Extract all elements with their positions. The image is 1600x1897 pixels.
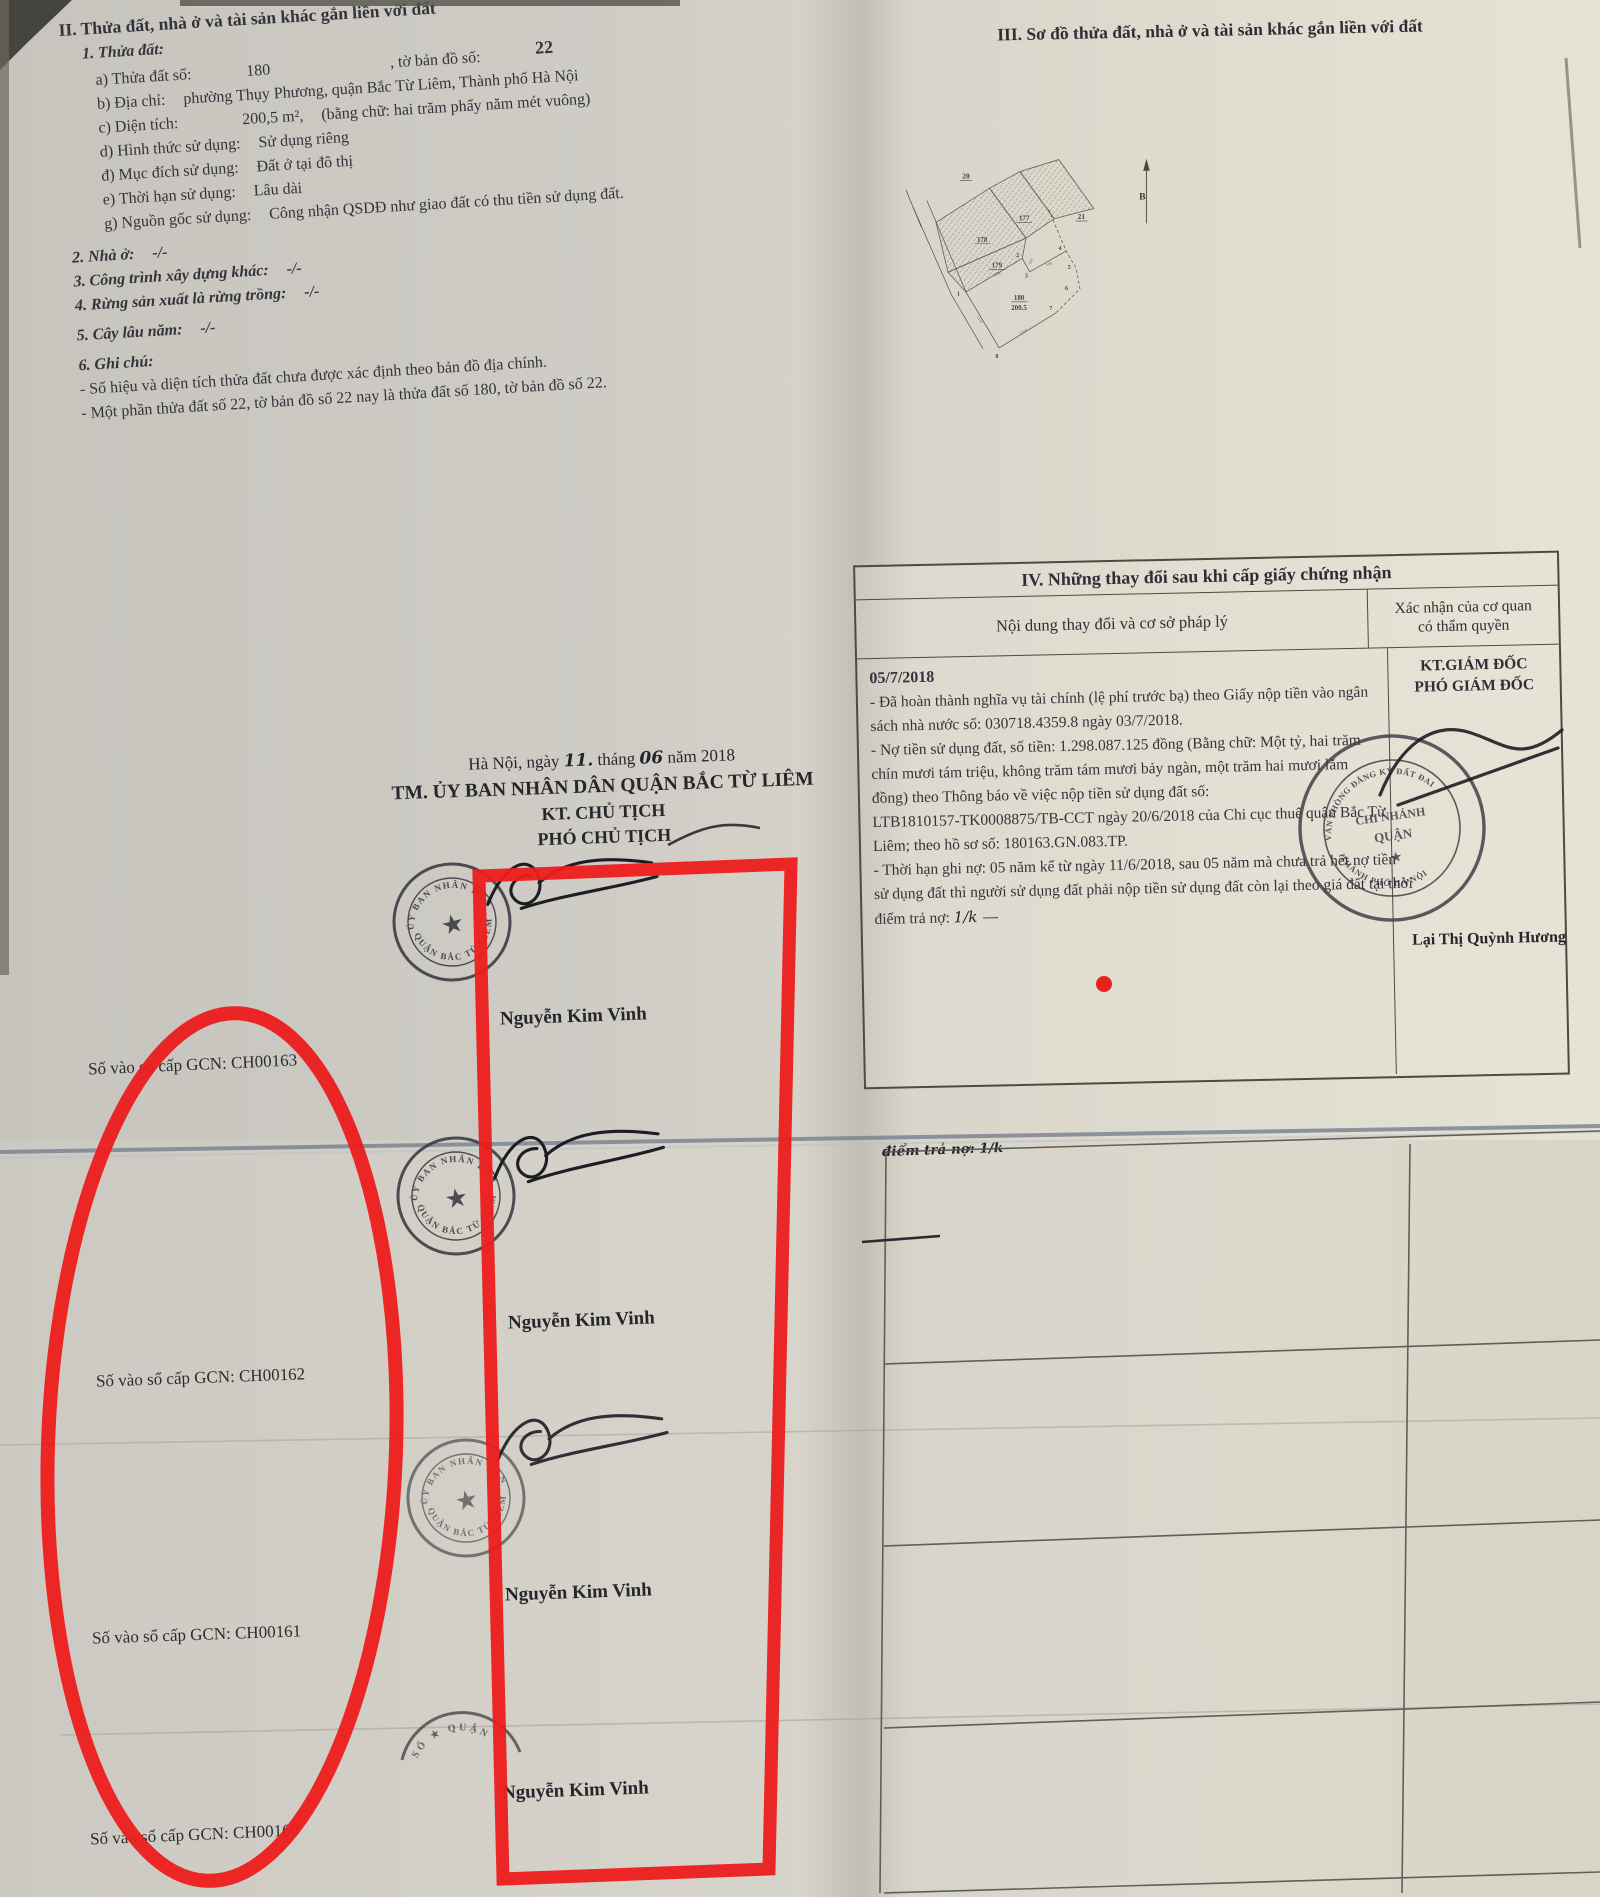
cont-row-line-5 (884, 1872, 1600, 1893)
registry-office-stamp: VĂN PHÒNG ĐĂNG KÝ ĐẤT ĐAI THÀNH PHỐ HÀ N… (1288, 724, 1496, 932)
red-dot-mark (1096, 976, 1112, 992)
page-left-edge-shadow (0, 0, 9, 975)
signature-3 (495, 1409, 669, 1468)
continuation-table (880, 1131, 1600, 1893)
signature-1-tail (668, 825, 760, 845)
red-rectangle-annotation (479, 864, 791, 1879)
page-corner-shadow (0, 0, 72, 70)
signature-2 (491, 1124, 666, 1185)
svg-text:THÀNH PHỐ HÀ NỘI: THÀNH PHỐ HÀ NỘI (1337, 842, 1430, 895)
big-stamp-star: ★ (1389, 850, 1404, 867)
big-stamp-center-2: QUẬN (1373, 825, 1414, 845)
cont-row-line-2 (884, 1340, 1600, 1364)
crease-line-2 (0, 1418, 1600, 1445)
cont-row-line-3 (884, 1520, 1600, 1546)
committee-stamp-3 (397, 1429, 535, 1567)
main-fold-highlight (0, 1132, 1600, 1158)
big-stamp-arc-bottom: THÀNH PHỐ HÀ NỘI (1337, 842, 1430, 895)
cont-row-line-4 (884, 1702, 1600, 1728)
crease-line-3 (60, 1704, 1600, 1735)
signature-1 (485, 853, 659, 912)
overlay-graphics: ỦY BAN NHÂN DÂN QUẬN BẮC TỪ LIÊM ★ (0, 0, 1600, 1897)
page-right-edge-line (1566, 58, 1580, 248)
red-oval-annotation (33, 1007, 411, 1887)
big-stamp-center-1: CHI NHÁNH (1355, 804, 1427, 828)
main-fold-line (0, 1126, 1600, 1152)
cont-column-divider (1402, 1144, 1410, 1893)
cont-left-border (880, 1152, 886, 1893)
page-top-edge-shadow (180, 0, 680, 6)
scanned-document-page: II. Thửa đất, nhà ở và tài sản khác gắn … (0, 0, 1600, 1897)
approver-signature (1380, 730, 1562, 805)
pen-dash-mark (862, 1236, 940, 1242)
